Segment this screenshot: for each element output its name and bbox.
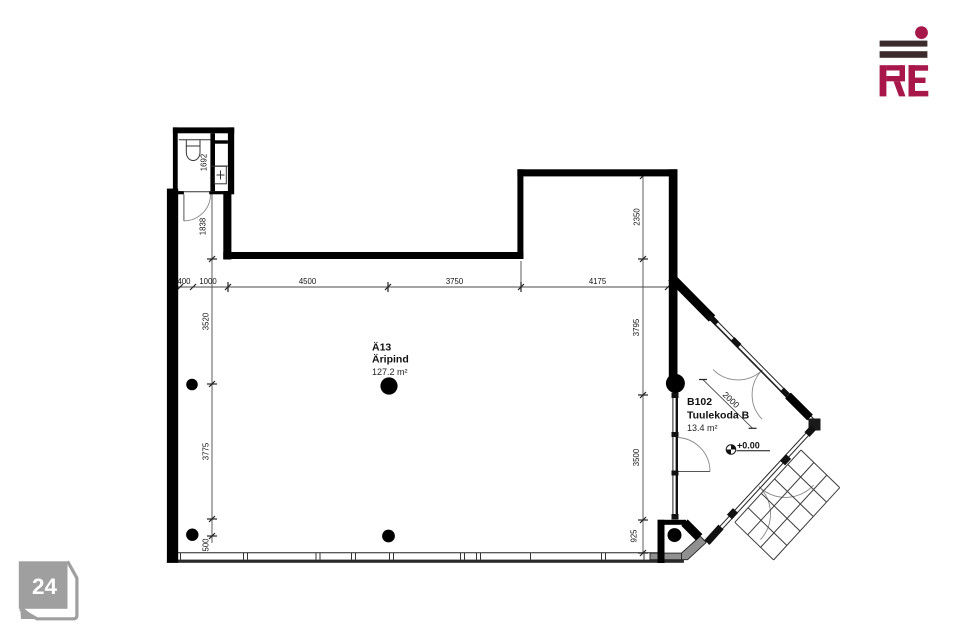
svg-text:3775: 3775 [202,442,211,460]
svg-text:+0.00: +0.00 [737,441,760,451]
svg-text:3500: 3500 [632,448,641,466]
svg-text:Tuulekoda B: Tuulekoda B [687,410,750,422]
svg-text:3795: 3795 [632,318,641,336]
svg-text:Ä13: Ä13 [372,341,391,354]
svg-text:3750: 3750 [446,277,464,286]
svg-text:4175: 4175 [589,277,607,286]
svg-text:400: 400 [177,277,191,286]
svg-text:127.2 m²: 127.2 m² [372,367,408,377]
svg-text:500: 500 [202,538,211,552]
svg-text:B102: B102 [687,396,712,408]
svg-text:Äripind: Äripind [372,352,409,365]
svg-text:925: 925 [630,529,639,543]
svg-text:2350: 2350 [633,208,642,226]
svg-text:1838: 1838 [199,218,208,235]
svg-text:1000: 1000 [199,277,217,286]
svg-text:1692: 1692 [200,154,209,171]
svg-text:13.4 m²: 13.4 m² [687,423,718,433]
svg-text:24: 24 [32,574,58,599]
svg-text:3520: 3520 [202,312,211,330]
svg-text:4500: 4500 [299,277,317,286]
